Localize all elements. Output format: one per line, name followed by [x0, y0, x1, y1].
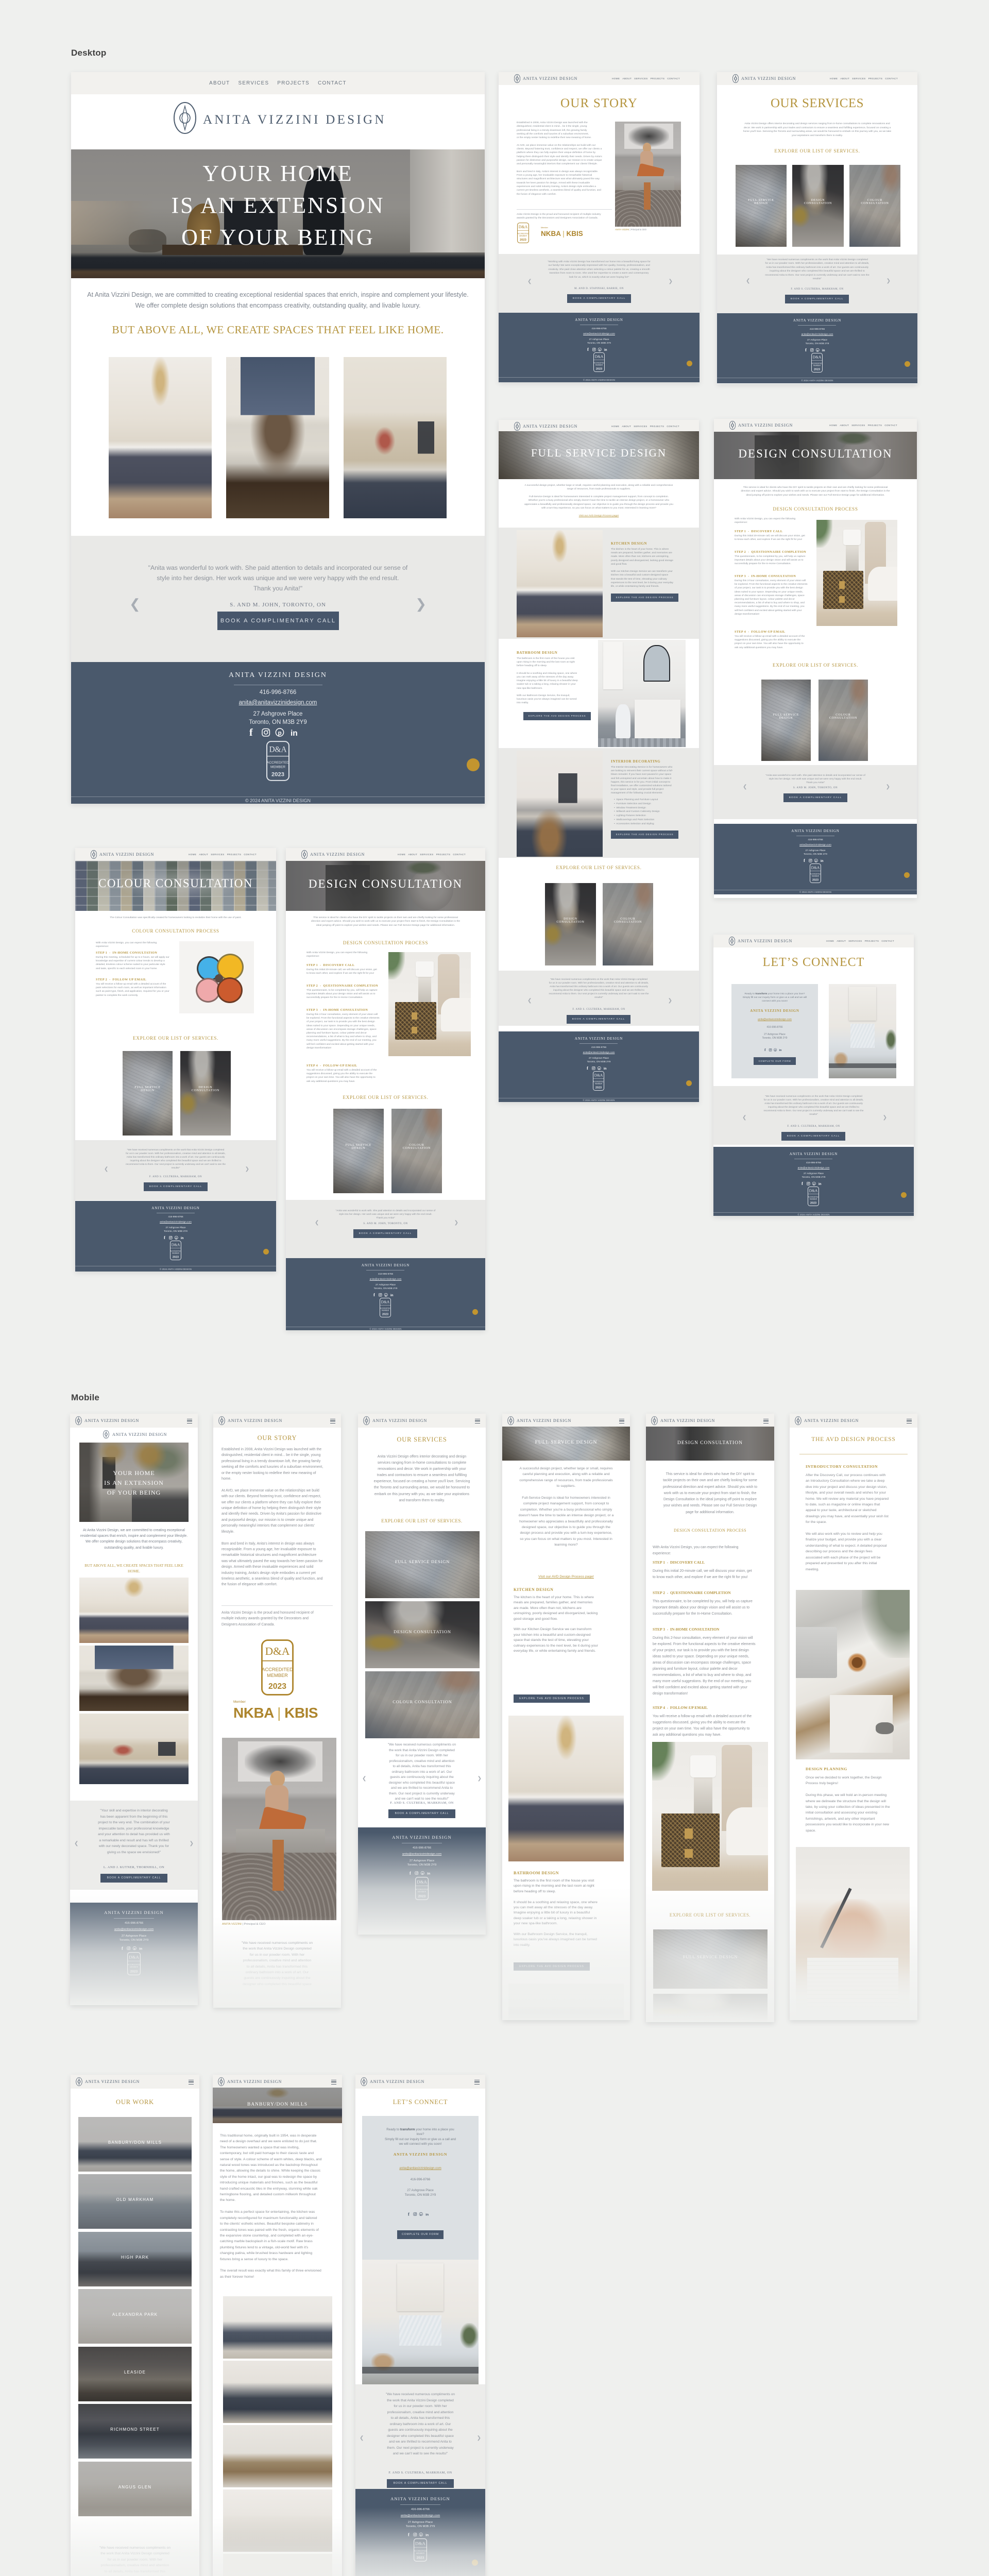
svg-text:ACCREDITED: ACCREDITED: [262, 1667, 293, 1672]
svg-text:f: f: [249, 727, 253, 737]
svg-text:in: in: [604, 1067, 607, 1070]
svg-text:MEMBER: MEMBER: [810, 1198, 817, 1200]
svg-text:ACCREDITED: ACCREDITED: [593, 362, 605, 364]
svg-text:MEMBER: MEMBER: [595, 364, 603, 366]
svg-text:D&A: D&A: [381, 1300, 390, 1304]
svg-text:2023: 2023: [595, 1087, 602, 1090]
svg-text:p: p: [420, 2214, 422, 2216]
svg-text:2023: 2023: [812, 879, 819, 882]
svg-text:ACCREDITED: ACCREDITED: [518, 233, 529, 235]
svg-text:f: f: [764, 1048, 766, 1052]
svg-text:ACCREDITED: ACCREDITED: [380, 1308, 391, 1310]
svg-text:p: p: [813, 1182, 815, 1185]
svg-text:p: p: [176, 1236, 177, 1239]
svg-text:2023: 2023: [810, 1202, 816, 1205]
svg-text:p: p: [599, 1067, 600, 1070]
svg-text:ACCREDITED: ACCREDITED: [170, 1250, 181, 1252]
svg-text:2023: 2023: [520, 239, 526, 242]
svg-text:MEMBER: MEMBER: [813, 365, 821, 367]
svg-text:MEMBER: MEMBER: [172, 1252, 180, 1255]
svg-text:in: in: [821, 859, 824, 862]
svg-text:D&A: D&A: [172, 1243, 180, 1247]
svg-text:ACCREDITED: ACCREDITED: [267, 761, 289, 765]
svg-text:p: p: [815, 859, 817, 862]
svg-text:2023: 2023: [382, 1313, 388, 1316]
svg-text:ACCREDITED: ACCREDITED: [811, 363, 823, 365]
svg-text:D&A: D&A: [595, 354, 604, 359]
svg-text:2023: 2023: [173, 1256, 179, 1259]
svg-text:p: p: [817, 349, 819, 351]
svg-text:2023: 2023: [814, 368, 820, 371]
svg-text:p: p: [599, 348, 601, 351]
svg-text:f: f: [804, 858, 805, 862]
svg-text:f: f: [587, 1066, 588, 1070]
svg-text:in: in: [390, 1294, 394, 1297]
svg-text:MEMBER: MEMBER: [519, 235, 527, 237]
svg-text:in: in: [604, 348, 607, 351]
svg-text:2023: 2023: [268, 1682, 286, 1691]
svg-text:MEMBER: MEMBER: [382, 1310, 389, 1312]
svg-text:in: in: [181, 1236, 184, 1240]
svg-text:MEMBER: MEMBER: [267, 1673, 288, 1678]
svg-text:D&A: D&A: [813, 355, 822, 360]
svg-text:p: p: [278, 730, 282, 736]
svg-text:D&A: D&A: [594, 1073, 603, 1078]
svg-text:p: p: [775, 1048, 776, 1051]
svg-text:in: in: [822, 349, 825, 352]
svg-text:D&A: D&A: [265, 1645, 290, 1657]
svg-text:D&A: D&A: [269, 745, 286, 754]
svg-text:f: f: [408, 2212, 410, 2216]
svg-text:MEMBER: MEMBER: [595, 1083, 603, 1085]
svg-text:2023: 2023: [271, 772, 284, 778]
svg-text:f: f: [802, 1181, 803, 1185]
svg-text:D&A: D&A: [811, 866, 820, 870]
svg-text:f: f: [164, 1235, 165, 1240]
svg-text:ACCREDITED: ACCREDITED: [808, 1196, 819, 1198]
svg-text:in: in: [779, 1049, 782, 1052]
svg-text:f: f: [805, 348, 807, 352]
svg-text:2023: 2023: [596, 368, 602, 371]
svg-text:ACCREDITED: ACCREDITED: [593, 1081, 604, 1083]
svg-text:in: in: [425, 2213, 429, 2216]
svg-text:in: in: [291, 729, 298, 737]
svg-text:ACCREDITED: ACCREDITED: [810, 873, 821, 875]
svg-text:MEMBER: MEMBER: [270, 765, 285, 769]
svg-text:D&A: D&A: [809, 1189, 818, 1193]
svg-text:f: f: [587, 347, 589, 351]
svg-text:in: in: [819, 1182, 822, 1185]
svg-text:D&A: D&A: [519, 225, 528, 229]
svg-text:f: f: [373, 1293, 375, 1297]
svg-text:p: p: [385, 1294, 387, 1296]
svg-text:MEMBER: MEMBER: [812, 875, 820, 877]
